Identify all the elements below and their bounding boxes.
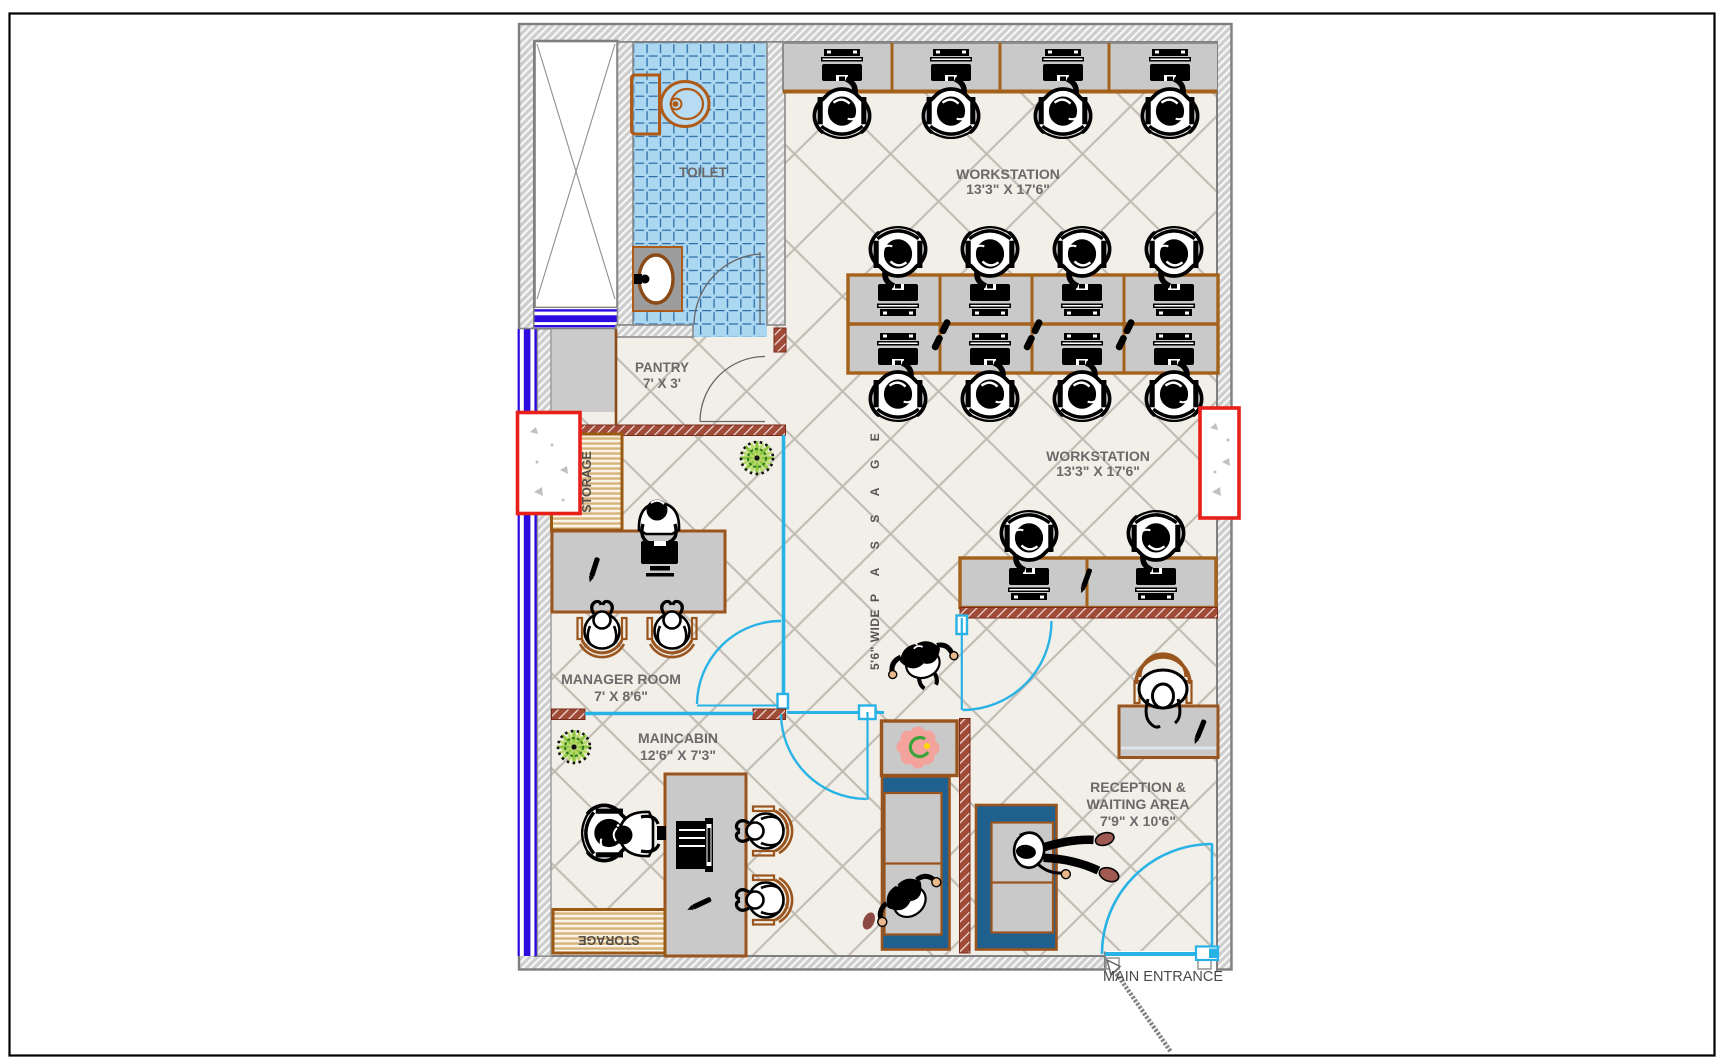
svg-text:TOILET: TOILET	[679, 165, 728, 180]
svg-text:13'3" X 17'6": 13'3" X 17'6"	[966, 181, 1050, 197]
svg-text:5'6" WIDE: 5'6" WIDE	[868, 609, 882, 670]
svg-text:STORAGE: STORAGE	[578, 933, 640, 947]
svg-text:7' X 8'6": 7' X 8'6"	[594, 688, 648, 704]
svg-text:MANAGER ROOM: MANAGER ROOM	[561, 671, 681, 687]
svg-text:WORKSTATION: WORKSTATION	[1046, 448, 1150, 464]
svg-text:STORAGE: STORAGE	[580, 451, 594, 513]
svg-text:7' X 3': 7' X 3'	[643, 376, 681, 391]
svg-text:PANTRY: PANTRY	[635, 360, 689, 375]
svg-text:WAITING AREA: WAITING AREA	[1087, 796, 1190, 812]
svg-text:MAINCABIN: MAINCABIN	[638, 730, 718, 746]
svg-text:PASSAGE: PASSAGE	[868, 415, 882, 602]
svg-text:RECEPTION &: RECEPTION &	[1090, 779, 1186, 795]
svg-text:13'3" X 17'6": 13'3" X 17'6"	[1056, 463, 1140, 479]
svg-text:7'9" X 10'6": 7'9" X 10'6"	[1100, 813, 1176, 829]
svg-text:WORKSTATION: WORKSTATION	[956, 166, 1060, 182]
svg-text:12'6" X 7'3": 12'6" X 7'3"	[640, 747, 716, 763]
svg-text:MAIN ENTRANCE: MAIN ENTRANCE	[1103, 969, 1223, 985]
